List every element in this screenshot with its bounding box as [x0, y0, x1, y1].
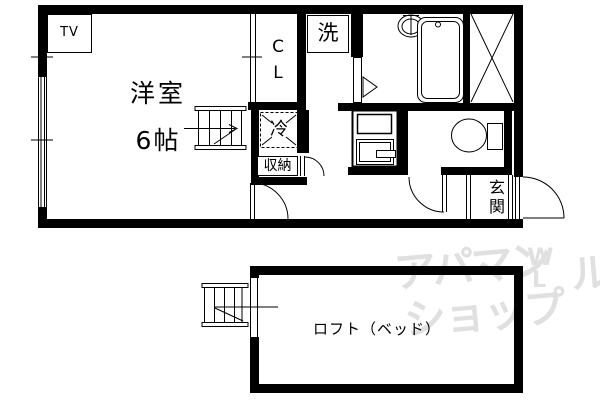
closet-label: CL — [269, 37, 286, 89]
tv-label: TV — [47, 26, 92, 39]
wall — [38, 5, 523, 14]
entrance-label: 玄関 — [487, 179, 503, 217]
loft-label: ロフト（ベッド） — [313, 322, 441, 337]
x-void-box — [471, 14, 513, 102]
entrance-door-arc — [516, 177, 565, 219]
wall — [441, 167, 512, 175]
floor-plan-drawing — [0, 0, 600, 400]
room-door-arc — [251, 183, 289, 219]
toilet-tank — [488, 124, 503, 150]
wall — [250, 266, 523, 275]
kitchen-unit — [353, 111, 398, 167]
bathtub — [418, 18, 464, 103]
wall — [504, 111, 512, 167]
wall — [514, 266, 523, 393]
wall — [351, 14, 363, 57]
storage-door-arc — [301, 156, 325, 176]
wall — [250, 337, 259, 393]
wall — [38, 219, 523, 228]
room-label: 洋室 — [118, 81, 198, 106]
wall — [514, 5, 523, 177]
closet-sliding-door — [242, 14, 262, 102]
storage-label: 収納 — [257, 159, 298, 173]
floor-plan-canvas: アパマン W L ル ショップ — [0, 0, 600, 400]
wall — [250, 384, 523, 393]
wall — [38, 5, 47, 77]
wall — [348, 167, 408, 175]
toilet-door-arc — [409, 175, 447, 212]
bathroom-folding-door-triangle — [363, 77, 377, 97]
room-size-label: 6帖 — [118, 128, 198, 153]
window — [31, 57, 53, 207]
wall — [297, 110, 309, 153]
wall — [248, 102, 306, 110]
wall — [250, 266, 259, 278]
fridge-label: 冷 — [260, 121, 298, 139]
washer-label: 洗 — [307, 23, 349, 44]
wall — [398, 111, 408, 175]
wall — [297, 10, 306, 103]
bathroom-door-panel — [354, 58, 362, 103]
wall — [463, 13, 470, 103]
toilet — [452, 119, 503, 152]
loft-ladder-icon — [202, 284, 278, 327]
